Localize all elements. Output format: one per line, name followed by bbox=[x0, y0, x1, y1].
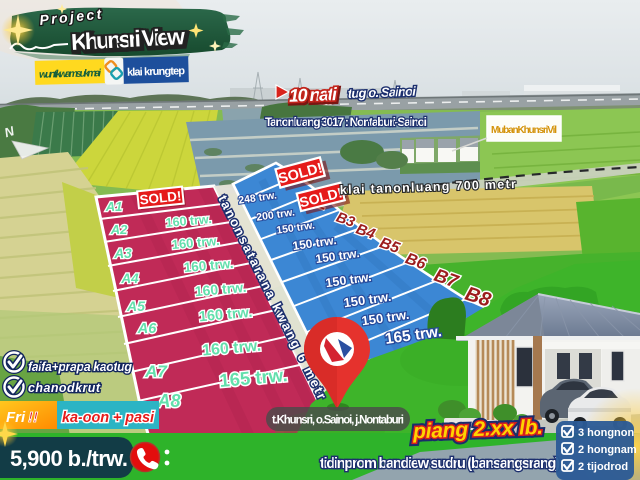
svg-text:chanodkrut: chanodkrut bbox=[28, 381, 101, 395]
svg-text:2 tijodrod: 2 tijodrod bbox=[578, 461, 628, 473]
svg-text:tidinprom bandiew sudru (bansa: tidinprom bandiew sudru (bansangsrang) bbox=[320, 456, 560, 472]
svg-text:3 hongnon: 3 hongnon bbox=[578, 427, 634, 439]
svg-text:klai krungtep: klai krungtep bbox=[127, 65, 186, 79]
svg-text:A4: A4 bbox=[120, 271, 139, 286]
svg-text:tug o. Sainoi: tug o. Sainoi bbox=[348, 84, 417, 101]
svg-text:wuntikwamsukmai: wuntikwamsukmai bbox=[39, 67, 102, 81]
svg-text:A7: A7 bbox=[144, 362, 168, 381]
svg-text:A5: A5 bbox=[126, 298, 145, 314]
svg-text:A2: A2 bbox=[110, 222, 128, 237]
svg-text:t.Khunsri, o.Sainoi, j.Nontabu: t.Khunsri, o.Sainoi, j.Nontaburi bbox=[272, 415, 404, 427]
svg-text:ka-oon + pasi: ka-oon + pasi bbox=[62, 410, 155, 426]
svg-text:Tanonluang 3017 : Nontaburi-Sa: Tanonluang 3017 : Nontaburi-Sainoi bbox=[265, 115, 427, 129]
svg-text:5,900 b./trw.: 5,900 b./trw. bbox=[10, 446, 128, 471]
svg-text:2 hongnam: 2 hongnam bbox=[578, 444, 637, 456]
svg-text:MubanKhunsriVil: MubanKhunsriVil bbox=[491, 125, 557, 136]
svg-text:A6: A6 bbox=[137, 321, 157, 337]
svg-text:faifa+prapa kaotug: faifa+prapa kaotug bbox=[28, 360, 132, 374]
svg-text:A1: A1 bbox=[105, 199, 123, 214]
svg-text:A8: A8 bbox=[156, 391, 180, 411]
svg-text:!!: !! bbox=[28, 409, 38, 426]
svg-text:piang 2.xx lb.: piang 2.xx lb. bbox=[412, 416, 544, 444]
svg-text:A3: A3 bbox=[113, 246, 132, 261]
svg-text:10 nati: 10 nati bbox=[289, 84, 339, 106]
